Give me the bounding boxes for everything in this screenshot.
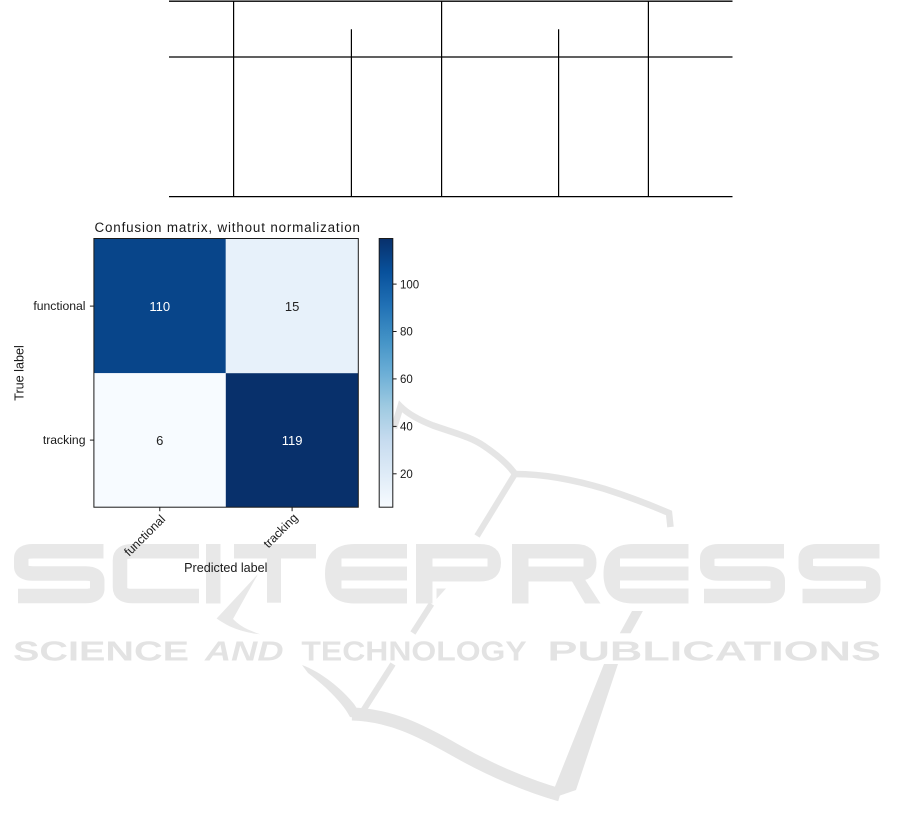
svg-text:functional: functional — [33, 299, 85, 313]
svg-text:40: 40 — [400, 422, 413, 434]
svg-text:True label: True label — [13, 345, 27, 401]
svg-text:119: 119 — [282, 433, 303, 448]
svg-text:Confusion matrix, without norm: Confusion matrix, without normalization — [95, 220, 361, 235]
svg-text:Predicted label: Predicted label — [184, 561, 267, 575]
svg-text:80: 80 — [400, 327, 413, 339]
svg-text:100: 100 — [400, 279, 419, 291]
svg-text:110: 110 — [149, 299, 170, 314]
svg-text:PUBLICATIONS: PUBLICATIONS — [548, 635, 882, 666]
svg-text:TECHNOLOGY: TECHNOLOGY — [301, 635, 526, 666]
svg-text:tracking: tracking — [43, 433, 86, 447]
svg-text:SCIENCE: SCIENCE — [13, 635, 189, 666]
svg-text:60: 60 — [400, 374, 413, 386]
svg-text:6: 6 — [156, 433, 163, 448]
svg-text:20: 20 — [400, 469, 413, 481]
svg-text:AND: AND — [204, 635, 284, 666]
svg-text:15: 15 — [285, 299, 299, 314]
